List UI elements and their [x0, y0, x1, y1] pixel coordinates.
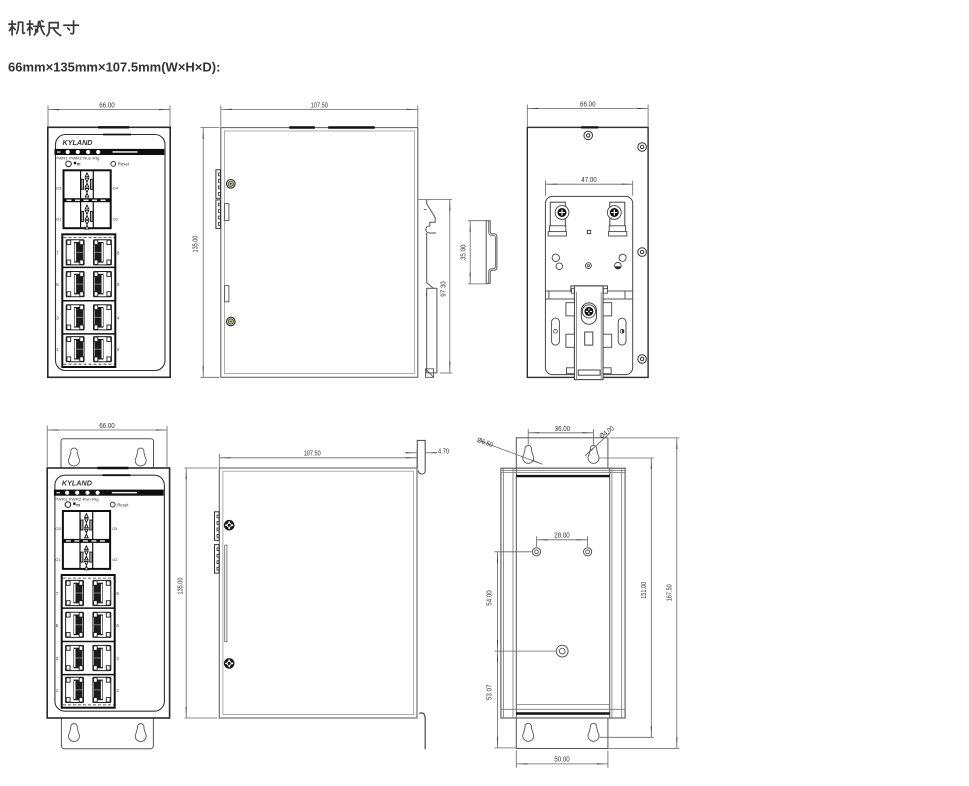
svg-text:47.00: 47.00	[581, 177, 597, 184]
svg-text:53.07: 53.07	[486, 684, 493, 700]
svg-text:66mm×135mm×107.5mm(W×H×D):: 66mm×135mm×107.5mm(W×H×D):	[8, 60, 220, 75]
svg-text:135.00: 135.00	[193, 235, 200, 252]
svg-text:135.00: 135.00	[178, 577, 185, 594]
svg-text:36.00: 36.00	[555, 426, 571, 433]
svg-text:107.50: 107.50	[311, 102, 328, 109]
svg-text:Reset: Reset	[118, 162, 130, 167]
svg-text:PWR1 PWR2 Run Rlg: PWR1 PWR2 Run Rlg	[55, 157, 99, 161]
svg-text:G2: G2	[113, 217, 119, 222]
svg-text:28.00: 28.00	[554, 533, 570, 540]
svg-text:G1: G1	[56, 217, 62, 222]
svg-text:G4: G4	[113, 185, 119, 190]
svg-text:167.50: 167.50	[666, 584, 673, 601]
svg-text:KYLAND: KYLAND	[63, 140, 93, 147]
svg-text:35.00: 35.00	[461, 244, 468, 260]
svg-text:107.50: 107.50	[304, 451, 321, 458]
svg-text:66.00: 66.00	[580, 101, 596, 108]
svg-text:97.30: 97.30	[440, 281, 447, 297]
svg-text:50.00: 50.00	[554, 757, 570, 764]
svg-text:Ø6.50: Ø6.50	[476, 437, 494, 449]
svg-text:151.00: 151.00	[641, 582, 648, 599]
svg-text:54.00: 54.00	[486, 590, 493, 606]
svg-text:66.00: 66.00	[99, 103, 115, 110]
svg-text:m: m	[77, 162, 81, 167]
svg-text:66.00: 66.00	[99, 423, 115, 430]
svg-text:G3: G3	[56, 185, 62, 190]
svg-text:4.70: 4.70	[438, 449, 449, 456]
